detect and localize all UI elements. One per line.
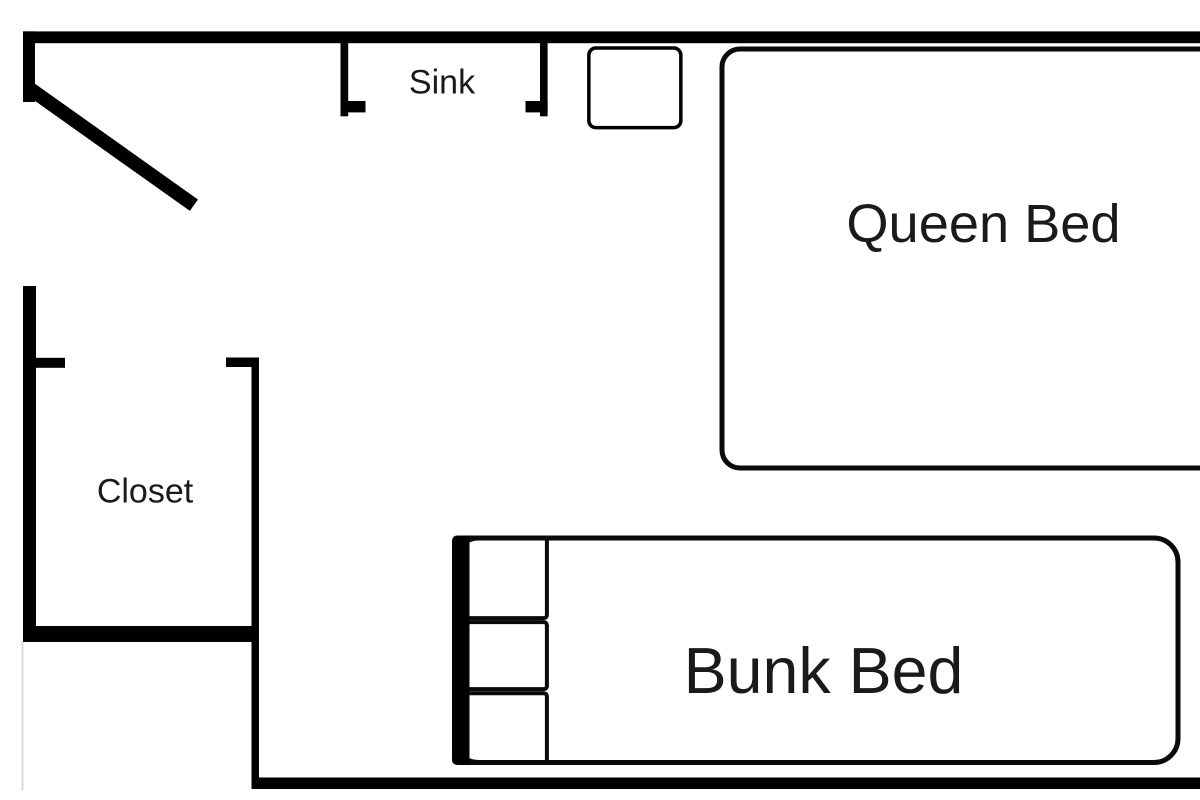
svg-text:Sink: Sink bbox=[409, 63, 476, 101]
svg-text:Queen Bed: Queen Bed bbox=[846, 194, 1120, 254]
svg-text:Bunk Bed: Bunk Bed bbox=[684, 635, 964, 707]
svg-text:Closet: Closet bbox=[97, 473, 194, 511]
